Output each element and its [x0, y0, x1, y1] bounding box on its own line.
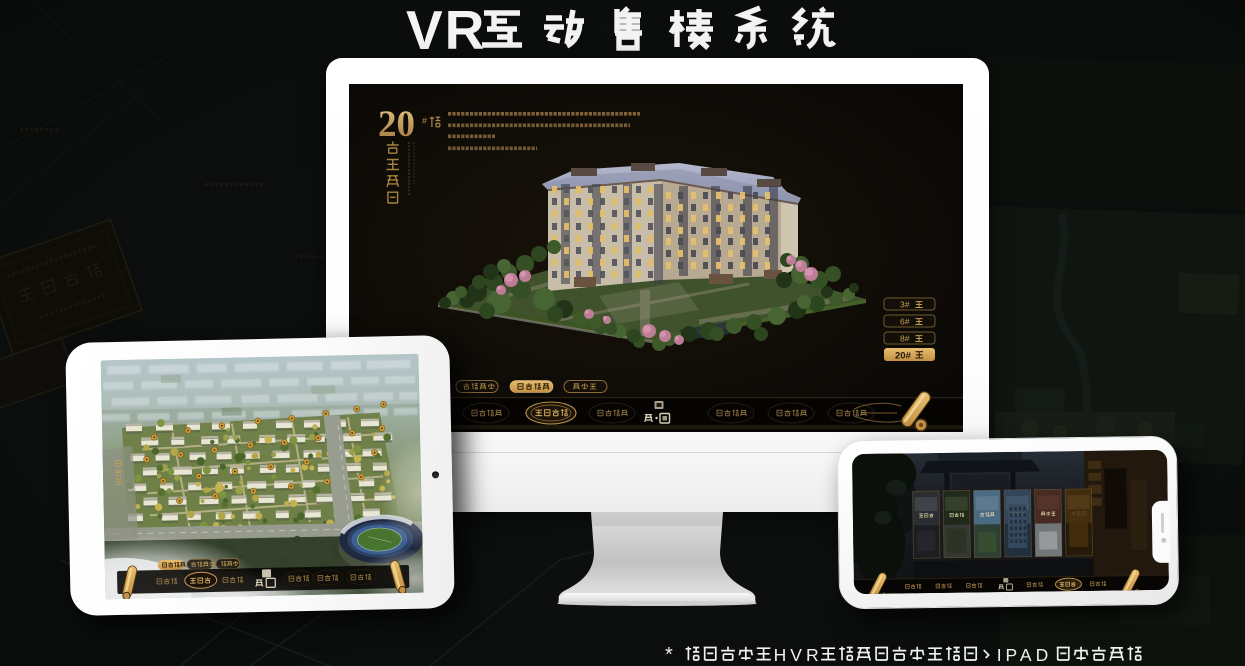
- svg-text:20: 20: [378, 104, 415, 145]
- svg-text:IPAD: IPAD: [997, 645, 1053, 665]
- svg-text:3#: 3#: [900, 300, 910, 310]
- svg-text:*: *: [665, 644, 673, 666]
- svg-text:6#: 6#: [900, 317, 910, 327]
- svg-text:#: #: [422, 116, 427, 126]
- svg-text:HVR: HVR: [774, 645, 823, 665]
- svg-text:VR: VR: [406, 0, 486, 61]
- svg-text:20#: 20#: [895, 351, 912, 362]
- svg-text:8#: 8#: [900, 334, 910, 344]
